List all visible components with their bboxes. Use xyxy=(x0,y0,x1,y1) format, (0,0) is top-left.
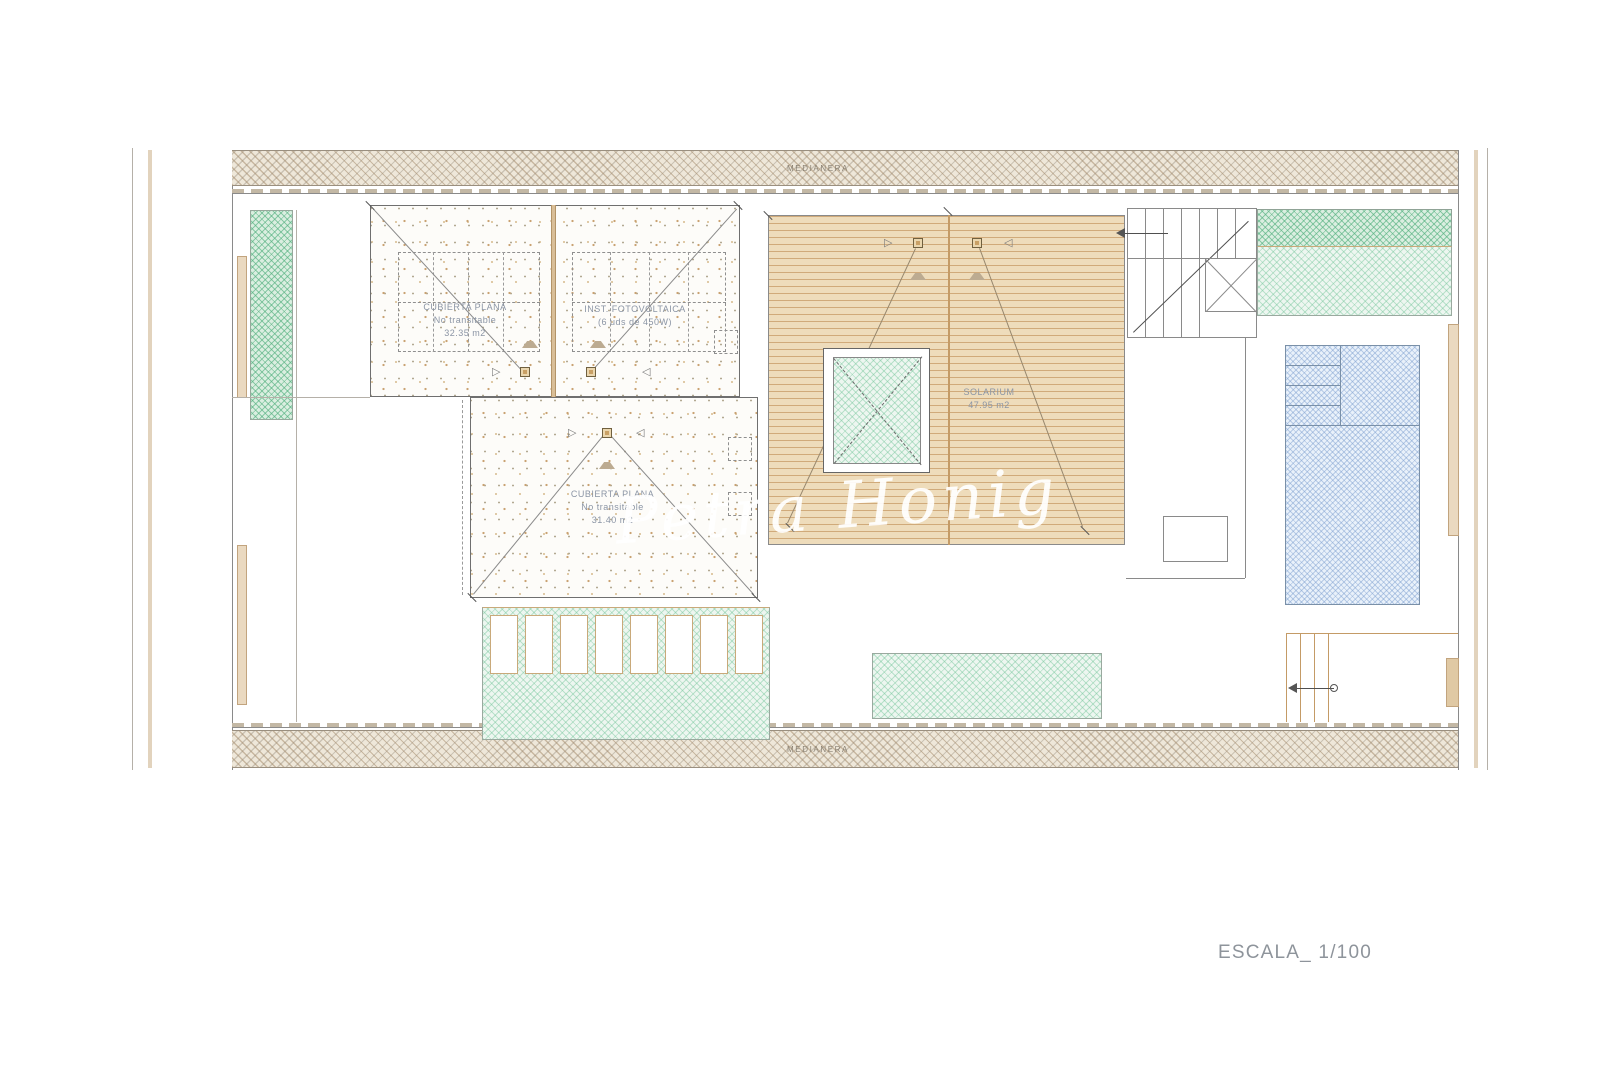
stair-tread xyxy=(1145,258,1146,338)
stair-tread xyxy=(1199,208,1200,258)
pool-step xyxy=(1285,365,1340,366)
pergola-slat xyxy=(735,615,763,674)
pergola-slat xyxy=(490,615,518,674)
stair-tread xyxy=(1300,633,1301,722)
pool-step-edge xyxy=(1340,345,1341,425)
slope-arrow-icon: ◁ xyxy=(642,366,650,377)
roof-hatch-detail xyxy=(728,492,752,516)
party-wall-top-label: MEDIANERA xyxy=(718,164,918,173)
wall-segment-right xyxy=(1448,324,1459,536)
pergola-slat xyxy=(630,615,658,674)
terrace-planter xyxy=(1163,516,1228,562)
roof-hatch-detail xyxy=(714,330,738,354)
terrace-wall-line xyxy=(1245,338,1246,578)
interior-wall-line-left xyxy=(296,210,297,722)
slope-arrow-icon: ◁ xyxy=(636,427,644,438)
page-edge-line-left xyxy=(132,148,133,770)
wall-tick-strip-top xyxy=(232,189,1458,194)
stair-tread xyxy=(1199,258,1200,338)
slope-arrow-icon: ▷ xyxy=(568,427,576,438)
stair-tread xyxy=(1181,208,1182,258)
wall-segment-right-lower xyxy=(1446,658,1459,707)
pool-step xyxy=(1285,385,1340,386)
stair-direction-line xyxy=(1296,688,1334,689)
stair-direction-arrow-icon xyxy=(1116,228,1125,238)
stair-start-marker-icon xyxy=(1330,684,1338,692)
photovoltaic-label: INST. FOTOVOLTAICA (6 uds de 450W) xyxy=(570,303,700,329)
interior-wall-line-horizontal xyxy=(232,397,370,398)
garden-band-light xyxy=(1257,247,1452,316)
pergola-slat xyxy=(700,615,728,674)
dimension-line xyxy=(462,400,463,595)
roof-drain-icon xyxy=(520,367,530,377)
stair-tread xyxy=(1181,258,1182,338)
roof-divider-wall xyxy=(551,205,556,397)
stair-tread xyxy=(1328,633,1329,722)
pool-step xyxy=(1285,405,1340,406)
wall-tick-strip-bottom xyxy=(232,723,1458,728)
stair-tread xyxy=(1163,258,1164,338)
pergola-slat xyxy=(560,615,588,674)
plot-boundary-left xyxy=(232,150,233,770)
roof-hatch-detail xyxy=(728,437,752,461)
solarium-label: SOLARIUM 47.95 m2 xyxy=(929,386,1049,412)
roof-drain-icon xyxy=(586,367,596,377)
garden-bottom-center xyxy=(872,653,1102,719)
party-wall-bottom-label: MEDIANERA xyxy=(718,745,918,754)
slope-arrow-icon: ◁ xyxy=(1004,237,1012,248)
stair-bottom-edge xyxy=(1286,633,1458,634)
pool xyxy=(1285,345,1420,605)
pergola-slat xyxy=(525,615,553,674)
wall-segment-left-upper xyxy=(237,256,247,398)
wall-segment-left-lower xyxy=(237,545,247,705)
pool-shelf-line xyxy=(1285,425,1420,426)
stair-direction-line xyxy=(1124,233,1168,234)
page-edge-strip-left xyxy=(148,150,152,768)
solarium-divider xyxy=(948,215,950,545)
page-edge-line-right xyxy=(1487,148,1488,770)
pergola-slat xyxy=(665,615,693,674)
page-edge-strip-right xyxy=(1474,150,1478,768)
stair-direction-arrow-icon xyxy=(1288,683,1297,693)
roof-drain-icon xyxy=(913,238,923,248)
pergola-slat xyxy=(595,615,623,674)
terrace-wall-line-bottom xyxy=(1126,578,1245,579)
roof-drain-icon xyxy=(602,428,612,438)
slope-arrow-icon: ▷ xyxy=(884,237,892,248)
flat-roof-center-label: CUBIERTA PLANA No transitable 31.40 m2 xyxy=(545,488,680,527)
stair-tread xyxy=(1314,633,1315,722)
scale-label: ESCALA_ 1/100 xyxy=(1185,942,1405,964)
roof-drain-icon xyxy=(972,238,982,248)
roof-plan-sheet: MEDIANERA MEDIANERA ▷ ◁ CUBIERTA PLANA N… xyxy=(0,0,1620,1080)
slope-arrow-icon: ▷ xyxy=(492,366,500,377)
garden-strip-left xyxy=(250,210,293,420)
stair-tread xyxy=(1286,633,1287,722)
garden-band-dark xyxy=(1257,209,1452,247)
flat-roof-left-label: CUBIERTA PLANA No transitable 32.35 m2 xyxy=(395,301,535,340)
